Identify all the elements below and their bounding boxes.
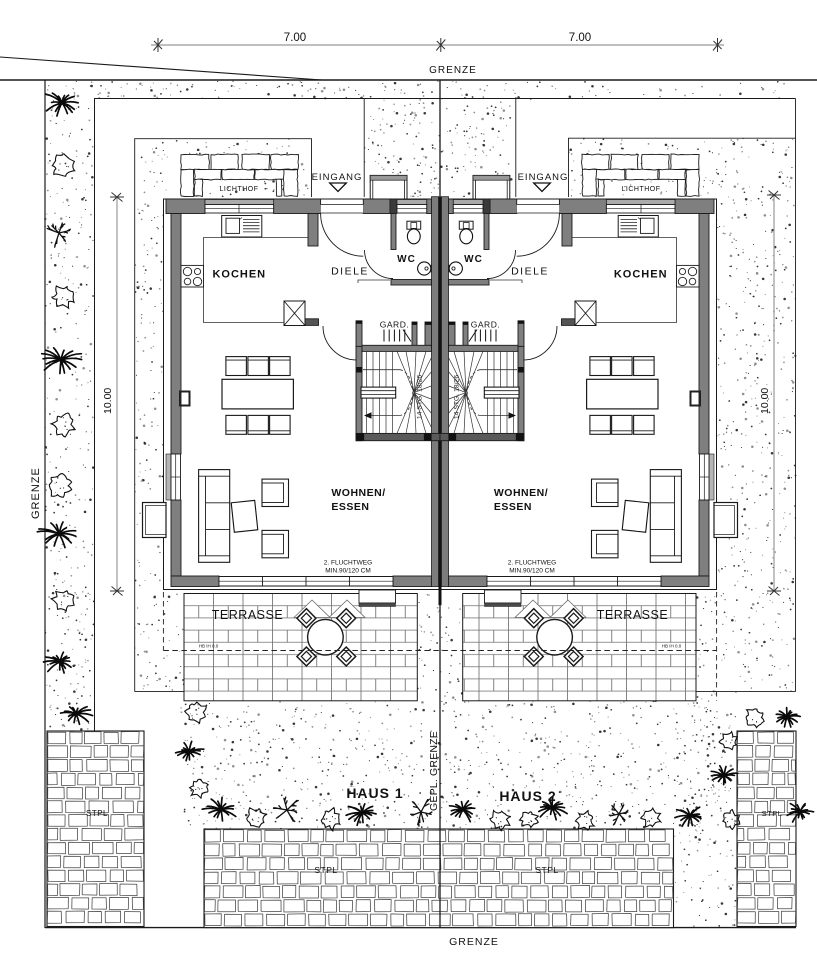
svg-text:DIELE: DIELE [511,266,549,278]
svg-text:7.00: 7.00 [569,32,591,44]
svg-text:STPL: STPL [86,809,108,818]
svg-text:GRENZE: GRENZE [449,936,499,948]
svg-text:GARD.: GARD. [380,320,409,330]
svg-text:STPL: STPL [535,865,558,875]
svg-text:LICHTHOF: LICHTHOF [220,186,259,193]
svg-text:STPL: STPL [314,865,337,875]
svg-text:WOHNEN/: WOHNEN/ [331,487,385,499]
svg-text:2. FLUCHTWEG: 2. FLUCHTWEG [508,560,556,567]
svg-text:GRENZE: GRENZE [30,467,42,519]
svg-text:DIELE: DIELE [331,266,369,278]
svg-text:10.00: 10.00 [759,388,771,414]
svg-text:EINGANG: EINGANG [518,172,569,183]
svg-text:HB IH 0.0: HB IH 0.0 [199,644,219,649]
svg-text:10.00: 10.00 [102,388,114,414]
svg-text:HB IH 0.0: HB IH 0.0 [662,644,682,649]
svg-text:7.00: 7.00 [284,32,306,44]
svg-text:WC: WC [397,254,416,265]
svg-text:TERRASSE: TERRASSE [212,608,283,622]
svg-text:14 STG. 18/26: 14 STG. 18/26 [417,375,424,419]
svg-text:KOCHEN: KOCHEN [212,269,266,281]
svg-text:WOHNEN/: WOHNEN/ [494,487,548,499]
svg-text:HAUS 2: HAUS 2 [499,788,556,804]
svg-text:MIN.90/120 CM: MIN.90/120 CM [325,568,371,575]
svg-text:WC: WC [464,254,483,265]
svg-text:ESSEN: ESSEN [331,501,369,513]
svg-text:GRENZE: GRENZE [429,65,477,76]
svg-text:ESSEN: ESSEN [494,501,532,513]
svg-text:2. FLUCHTWEG: 2. FLUCHTWEG [324,560,372,567]
svg-text:TERRASSE: TERRASSE [597,608,668,622]
svg-text:KOCHEN: KOCHEN [614,269,668,281]
svg-text:STPL: STPL [762,809,783,818]
svg-text:MIN.90/120 CM: MIN.90/120 CM [509,568,555,575]
svg-text:LICHTHOF: LICHTHOF [622,186,661,193]
svg-text:EINGANG: EINGANG [312,172,363,183]
svg-text:HAUS 1: HAUS 1 [346,785,403,801]
svg-text:14 STG. 18/26: 14 STG. 18/26 [454,375,461,419]
svg-text:GARD.: GARD. [471,320,500,330]
